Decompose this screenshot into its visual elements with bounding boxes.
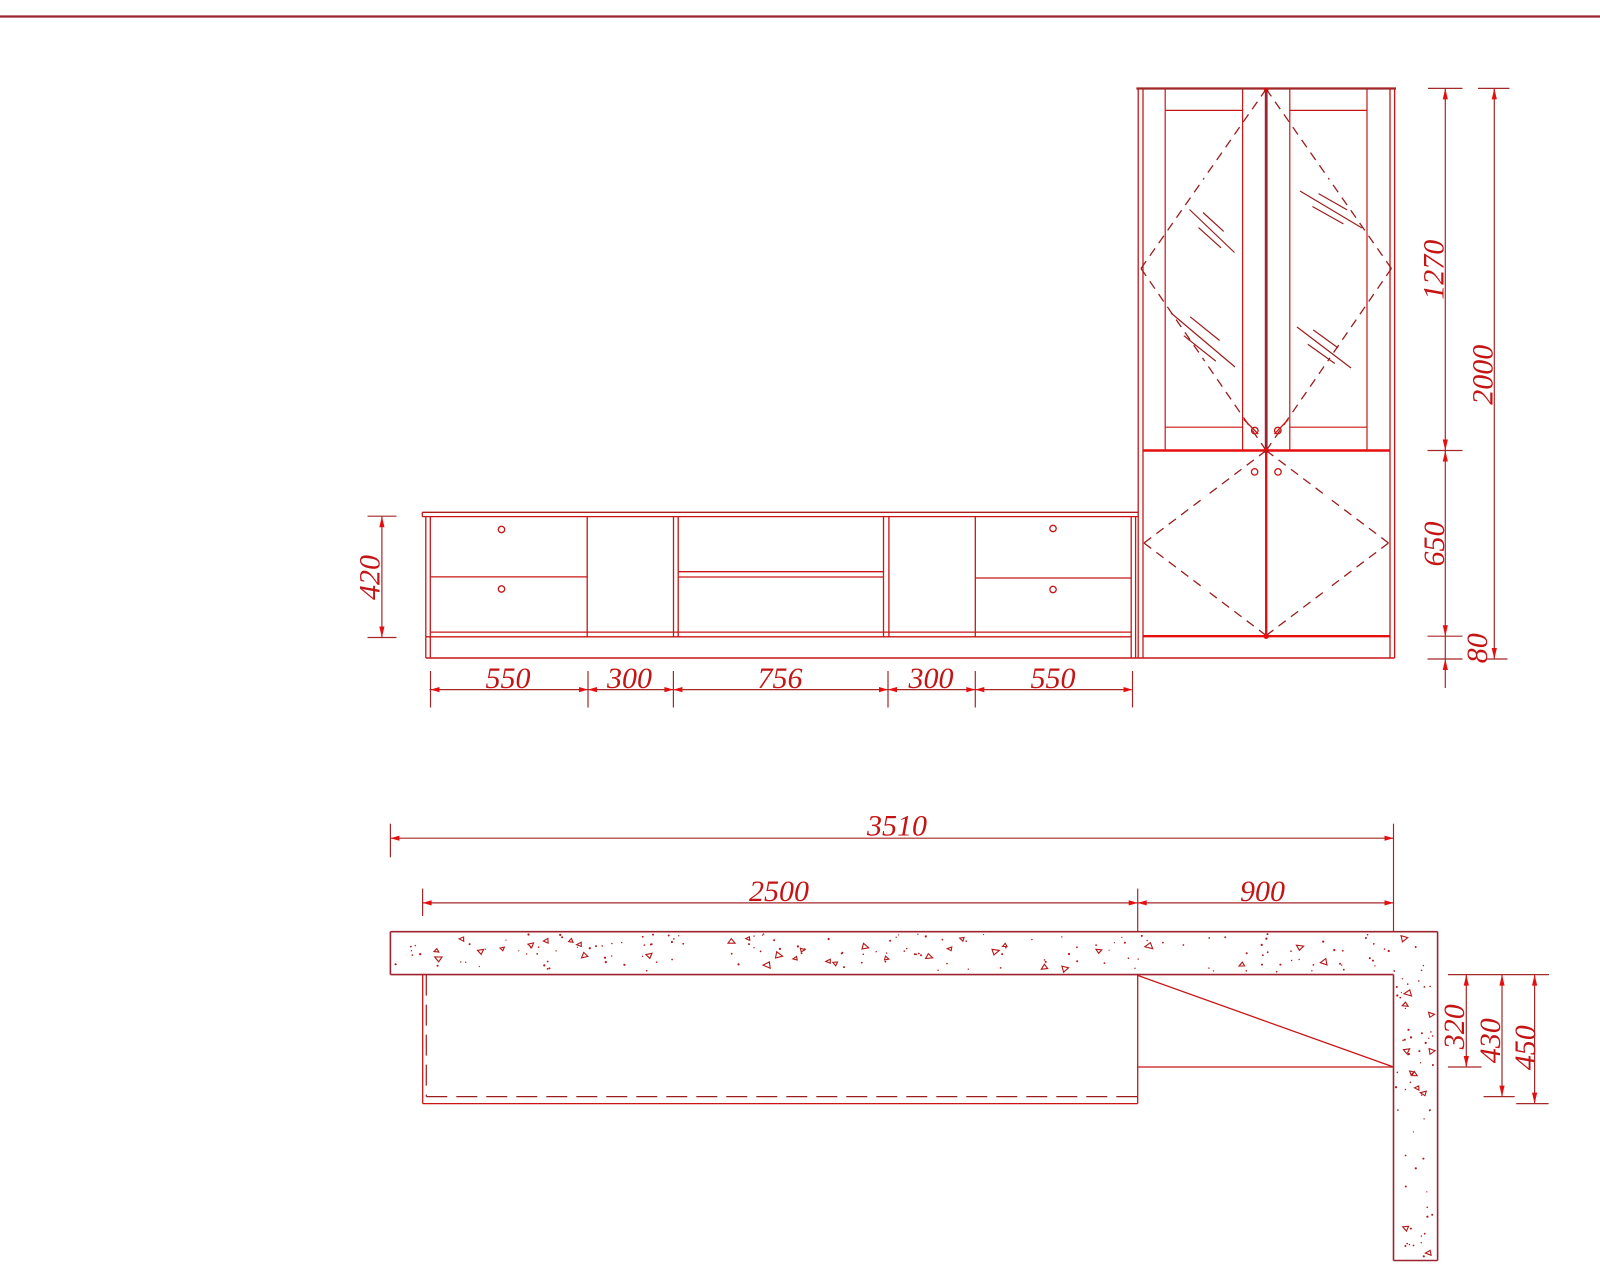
svg-text:80: 80 bbox=[1461, 633, 1494, 663]
svg-text:2000: 2000 bbox=[1466, 345, 1499, 405]
svg-text:2500: 2500 bbox=[749, 875, 809, 908]
svg-text:650: 650 bbox=[1418, 522, 1451, 567]
svg-text:1270: 1270 bbox=[1418, 240, 1451, 300]
svg-text:300: 300 bbox=[908, 662, 954, 695]
svg-text:300: 300 bbox=[606, 662, 652, 695]
svg-text:756: 756 bbox=[758, 662, 803, 695]
svg-text:3510: 3510 bbox=[866, 810, 927, 843]
svg-text:430: 430 bbox=[1474, 1018, 1507, 1063]
svg-text:420: 420 bbox=[354, 555, 387, 600]
svg-text:900: 900 bbox=[1240, 875, 1285, 908]
svg-text:450: 450 bbox=[1509, 1025, 1542, 1070]
svg-text:550: 550 bbox=[1031, 662, 1076, 695]
svg-text:550: 550 bbox=[486, 662, 531, 695]
svg-text:320: 320 bbox=[1438, 1004, 1471, 1050]
